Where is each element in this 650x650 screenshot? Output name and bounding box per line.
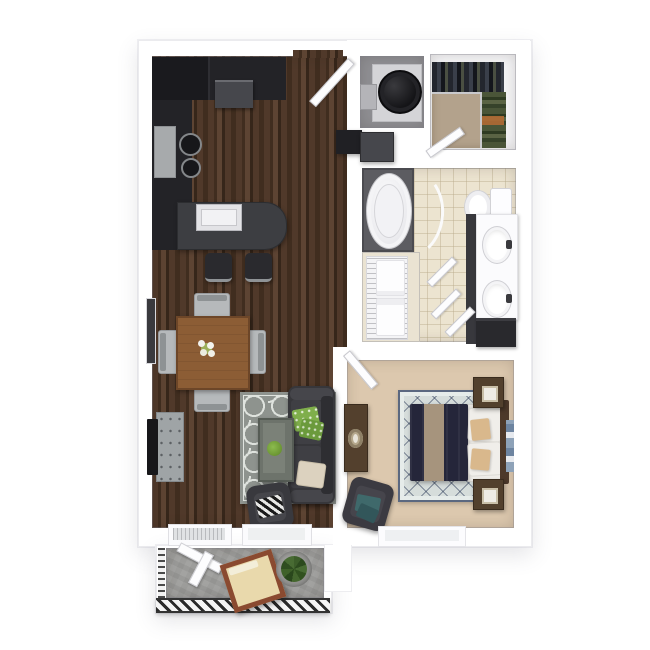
vanity-cabinet <box>476 318 516 347</box>
floorplan-image <box>0 0 650 650</box>
sofa <box>288 386 335 504</box>
chair-back <box>197 295 227 301</box>
entry-threshold <box>293 50 343 58</box>
closet-clothes-orange-item <box>482 116 504 125</box>
washer <box>378 70 422 114</box>
nightstand <box>473 479 504 510</box>
range-burner <box>181 158 201 178</box>
nightstand-lamp <box>482 386 498 402</box>
towel-stack <box>376 260 405 296</box>
range-front-panel <box>154 126 176 178</box>
oval-tray <box>348 429 363 448</box>
balcony-railing-left <box>158 548 165 598</box>
dining-table <box>176 316 250 390</box>
laundry-side-shelf <box>360 84 377 110</box>
towel-stack <box>376 298 405 336</box>
vanity-side-panel <box>466 214 476 344</box>
chair-back <box>160 333 166 371</box>
bed-runner <box>424 404 444 481</box>
refrigerator <box>152 57 210 100</box>
coffee-table <box>258 418 294 482</box>
chair-back <box>258 333 264 371</box>
chair-back <box>197 404 227 410</box>
table-plant <box>267 441 282 456</box>
left-wall-window <box>146 298 156 364</box>
sink-faucet <box>506 240 512 249</box>
closet-clothes-top <box>432 62 504 94</box>
bedroom-window <box>378 526 466 547</box>
range-burner <box>179 133 202 156</box>
tv <box>147 419 158 475</box>
wall-oven-appliance <box>215 80 253 108</box>
nightstand-lamp <box>482 488 498 504</box>
living-window <box>168 524 232 546</box>
bed-pillow-tan <box>470 418 491 441</box>
bar-stool <box>245 253 272 282</box>
bar-stool <box>205 253 232 282</box>
window-glass <box>385 530 459 541</box>
island-sink <box>196 204 242 231</box>
potted-plant <box>281 556 307 582</box>
balcony-wall-jog <box>324 545 352 592</box>
cream-pillow <box>295 460 326 489</box>
nightstand <box>473 377 504 408</box>
hall-cabinet <box>336 130 362 154</box>
living-window <box>242 524 312 546</box>
hall-console <box>360 132 394 162</box>
tv-console <box>156 412 184 482</box>
sink-faucet <box>506 294 512 303</box>
bedroom-wall-decor <box>506 420 514 472</box>
flower-centerpiece <box>198 340 205 347</box>
window-screen <box>248 528 305 540</box>
window-screen <box>173 528 225 540</box>
lounge-chair-pillow <box>228 560 259 576</box>
bed-pillow-tan <box>470 448 491 471</box>
dresser <box>344 404 368 472</box>
